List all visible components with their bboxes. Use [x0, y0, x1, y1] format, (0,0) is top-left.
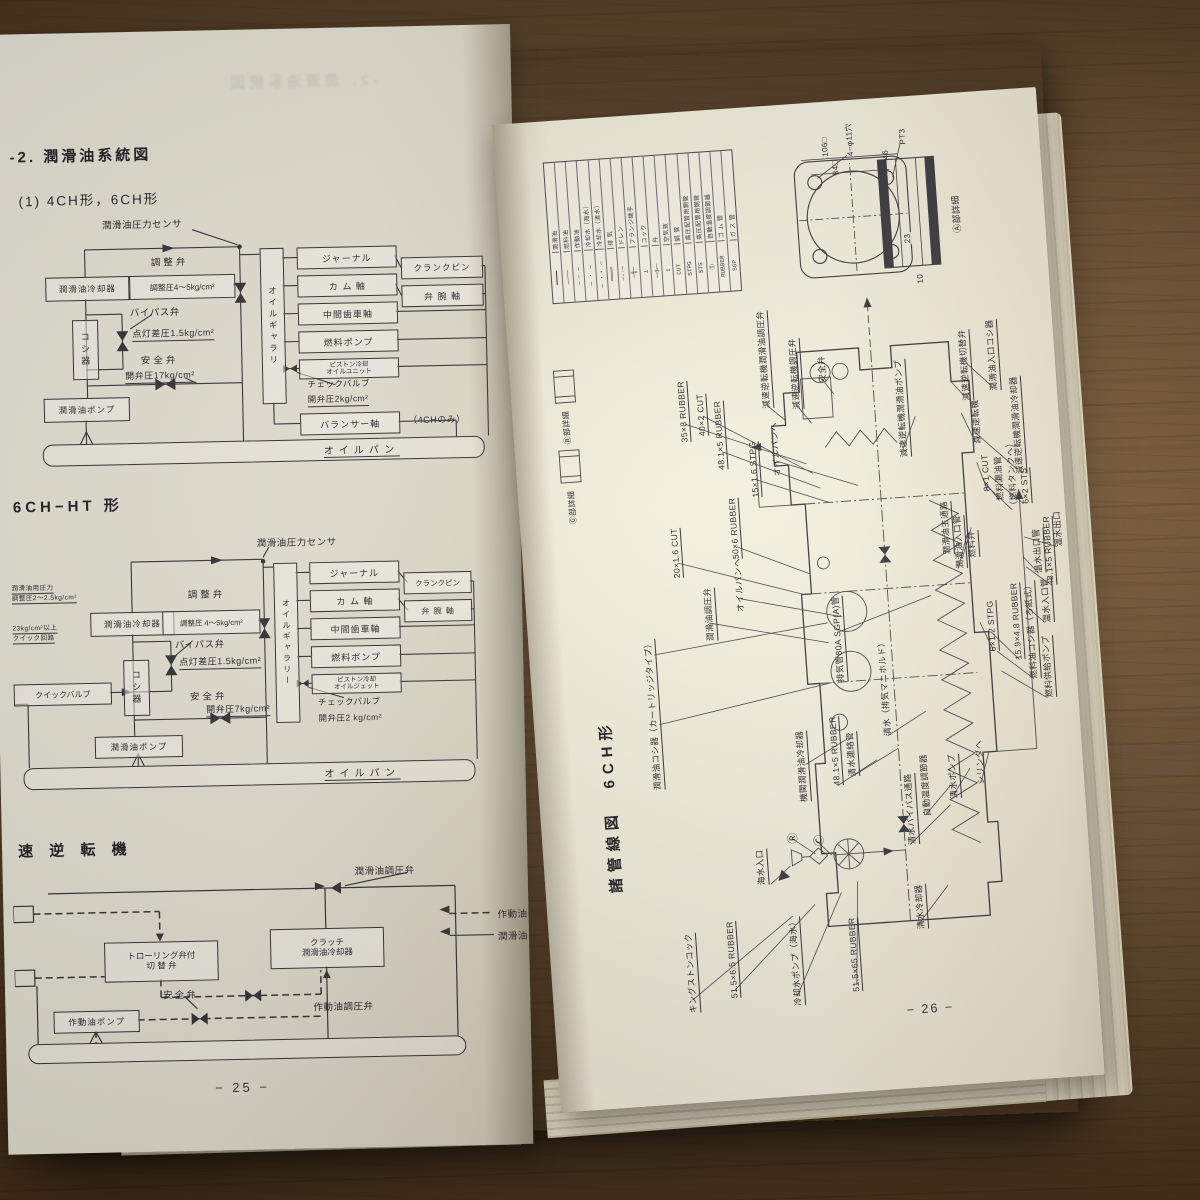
- box-regulating-pressure: 調整圧4〜5kg/cm²: [129, 274, 235, 300]
- photo-of-open-manual: -2. 潤滑油系統図 -2. 潤滑油系統図 (1) 4CH形，6CH形: [0, 0, 1200, 1200]
- component-label: 安全弁: [815, 355, 829, 382]
- section-title-reversing-gear: 速 逆 転 機: [18, 838, 133, 861]
- box-idler-gear-shaft-2: 中間歯車軸: [310, 616, 400, 640]
- detail-g-label: Ⓖ部詳細: [566, 490, 579, 524]
- clutch-line2: 潤滑油冷却器: [302, 947, 353, 958]
- note-oil-pressure-line2: 調整圧2〜2.5kg/cm²: [12, 591, 77, 604]
- section-title-6ch-ht: 6CH−HT 形: [13, 494, 123, 517]
- label-opening-pressure-2: 開弁圧2kg/cm²: [308, 392, 369, 407]
- subsection-title: (1) 4CH形，6CH形: [18, 187, 159, 210]
- pipe-label: 温水入口管: [1038, 578, 1055, 623]
- box-crankpin: クランクピン: [401, 256, 483, 280]
- page-number-25: − 25 −: [215, 1079, 270, 1095]
- diagram-reversing-gear: 潤滑油調圧弁 作動油 潤滑油 トローリング弁付 切 替 弁 クラッチ 潤滑油冷却…: [13, 862, 522, 1068]
- box-piston-cooling-unit: ピストン冷却 オイルユニット: [299, 357, 399, 379]
- dim-label-46: 46: [881, 150, 891, 160]
- left-page: -2. 潤滑油系統図 -2. 潤滑油系統図 (1) 4CH形，6CH形: [0, 24, 533, 1155]
- right-page: 諸管線図 6CH形 ━━━━潤滑油 ────燃料油 ─ ─ ─作動油 ─ ・ ─…: [492, 87, 1105, 1113]
- label-oil-pan-2: オイルパン: [324, 763, 400, 781]
- box-lube-oil-pump: 潤滑油ポンプ: [44, 397, 130, 423]
- box-piston-cooling-jet: ピストン冷却 オイルジェット: [311, 672, 401, 694]
- label-regulating-valve: 調整弁: [151, 254, 189, 269]
- box-journal: ジャーナル: [297, 245, 397, 269]
- box-oil-gallery-2: オイルギャラリー: [273, 563, 300, 723]
- label-bypass-valve-2: バイパス弁: [175, 636, 225, 651]
- label-regulating-valve-2: 調整弁: [188, 586, 226, 601]
- pipe-label: 清水連絡管: [843, 731, 860, 776]
- box-strainer-2: コシ器: [123, 660, 150, 717]
- box-camshaft: カ ム 軸: [297, 273, 397, 297]
- box-oil-gallery: オイルギャラリ: [260, 248, 287, 404]
- box-trolling-change-valve: トローリング弁付 切 替 弁: [104, 940, 219, 982]
- landscape-drawing: 諸管線図 6CH形 ━━━━潤滑油 ────燃料油 ─ ─ ─作動油 ─ ・ ─…: [503, 97, 1103, 1082]
- label-safety-valve: 安全弁: [141, 352, 179, 367]
- box-fuel-pump-2: 燃料ポンプ: [311, 644, 401, 668]
- box-strainer: コシ器: [72, 320, 99, 381]
- dim-label-84: 84□: [830, 160, 840, 176]
- ref-bubble-r: Ⓡ: [784, 832, 801, 844]
- thread-label-pt3: PT3: [897, 128, 907, 144]
- component-label: 海水入口: [753, 849, 769, 885]
- component-label: 燃料弁: [964, 530, 980, 558]
- component-label: 清水冷却器: [912, 884, 929, 929]
- dim-label-106: 106□: [820, 137, 830, 157]
- box-rocker-shaft-2: 弁 腕 軸: [404, 599, 472, 622]
- box-journal-2: ジャーナル: [309, 560, 399, 584]
- label-working-press-valve: 作動油調圧弁: [313, 998, 373, 1013]
- box-lube-oil-pump-2: 潤滑油ポンプ: [95, 735, 183, 759]
- diagram-6ch-ht: 潤滑油用圧力 調整圧2〜2.5kg/cm² 23kg/cm²以上 クイック回路 …: [10, 517, 486, 797]
- holes-label: 4−φ11穴: [843, 123, 856, 157]
- box-idler-gear-shaft: 中間歯車軸: [298, 301, 398, 325]
- piston-jet-line2: オイルジェット: [334, 683, 380, 691]
- label-4ch-only: （4CHのみ）: [408, 412, 466, 426]
- box-clutch-oil-cooler: クラッチ 潤滑油冷却器: [270, 927, 385, 969]
- label-oil-pan: オイルパン: [324, 440, 400, 458]
- bleed-through-text: -2. 潤滑油系統図: [226, 69, 378, 93]
- legend-working-oil: 作動油: [497, 906, 527, 921]
- piston-cooling-line2: オイルユニット: [326, 368, 372, 376]
- section-title: -2. 潤滑油系統図: [9, 144, 151, 168]
- box-crankpin-2: クランクピン: [403, 571, 471, 594]
- label-lamp-diff-2: 点灯差圧1.5kg/cm²: [179, 653, 261, 670]
- label-check-valve: チェックバルブ: [307, 377, 370, 390]
- box-working-oil-pump: 作動油ポンプ: [53, 1010, 139, 1034]
- label-lamp-diff-pressure: 点灯差圧1.5kg/cm²: [132, 325, 214, 342]
- trolling-line2: 切 替 弁: [146, 961, 176, 971]
- dim-label-10: 10: [915, 273, 925, 283]
- component-label: 清水ポンプ: [945, 754, 962, 799]
- label-opening-pressure-17: 開弁圧17kg/cm²: [125, 368, 195, 384]
- label-opening-pressure-2b: 開弁圧2 kg/cm²: [318, 711, 382, 724]
- detail-b-label: Ⓑ部詳細: [560, 411, 573, 445]
- label-safety-valve-2: 安全弁: [190, 688, 228, 703]
- label-bypass-valve: バイパス弁: [130, 304, 180, 319]
- label-opening-pressure-7: 開弁圧7kg/cm²: [206, 701, 270, 717]
- box-rocker-shaft: 弁 腕 軸: [401, 284, 483, 308]
- note-quick-line2: クイック回路: [13, 632, 55, 645]
- label-check-valve-2: チェックバルブ: [318, 695, 381, 708]
- legend-lube-oil: 潤滑油: [498, 928, 528, 943]
- box-oil-cooler: 潤滑油冷却器: [45, 276, 129, 302]
- ref-bubble-c: Ⓒ: [810, 834, 827, 846]
- box-fuel-pump: 燃料ポンプ: [298, 329, 398, 353]
- diagram-4ch-6ch: 潤滑油圧力センサ 潤滑油冷却器 調整圧4〜5kg/cm² 調整弁 バイパス弁 コ…: [32, 211, 497, 471]
- detail-a-label: Ⓐ部詳細: [948, 195, 964, 233]
- box-regulating-pressure-2: 調整圧 4〜5kg/cm²: [162, 609, 260, 635]
- label-oil-pressure-sensor: 潤滑油圧力センサ: [102, 216, 182, 232]
- box-camshaft-2: カ ム 軸: [310, 588, 400, 612]
- box-balancer-shaft: バランサー軸: [300, 411, 400, 435]
- dim-label-23: 23: [903, 232, 913, 244]
- label-safety-valve-3: 安全弁: [163, 987, 198, 1002]
- box-quick-valve: クイックバルブ: [14, 682, 112, 706]
- label-lube-press-valve: 潤滑油調圧弁: [354, 862, 414, 877]
- pipe-label: 温水出口: [1050, 511, 1064, 547]
- label-oil-pressure-sensor-2: 潤滑油圧力センサ: [257, 534, 337, 550]
